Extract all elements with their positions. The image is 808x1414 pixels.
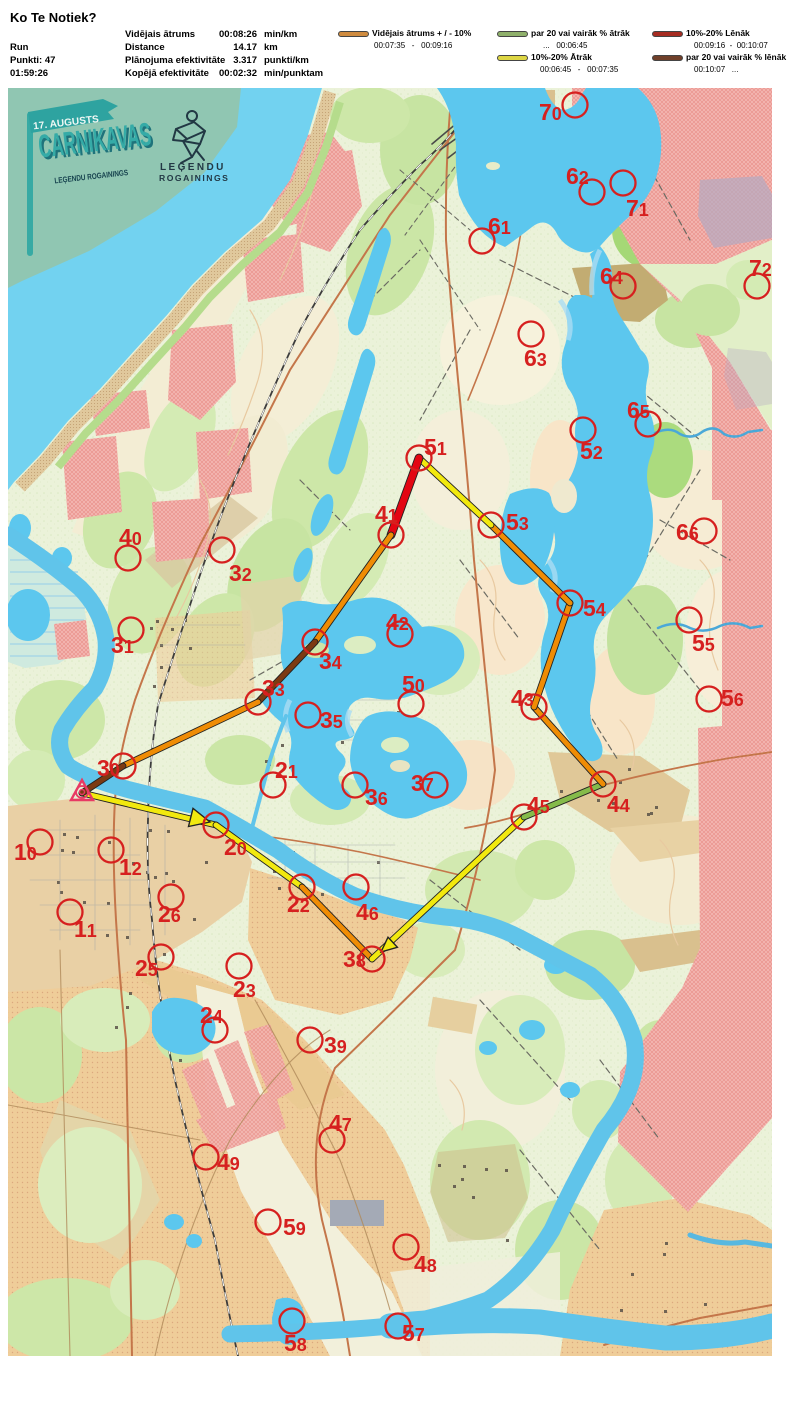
svg-text:LEĢENDU: LEĢENDU [160,162,226,173]
svg-text:ROGAININGS: ROGAININGS [159,173,229,183]
